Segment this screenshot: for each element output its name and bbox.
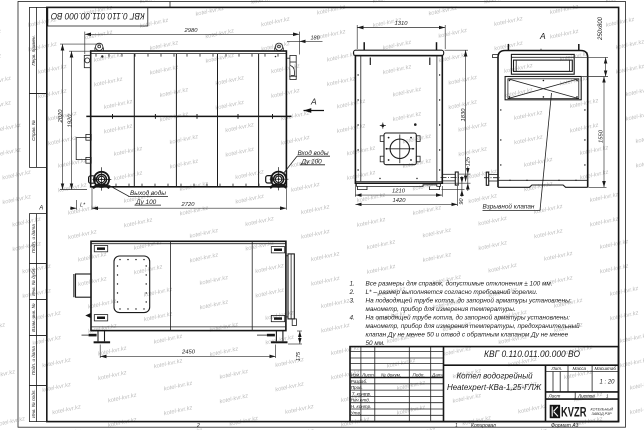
svg-text:kotel-kvr.kz: kotel-kvr.kz — [2, 194, 32, 206]
svg-text:kotel-kvr.kz: kotel-kvr.kz — [488, 263, 518, 275]
svg-text:2980: 2980 — [184, 28, 199, 34]
svg-text:kotel-kvr.kz: kotel-kvr.kz — [2, 170, 32, 182]
svg-text:kotel-kvr.kz: kotel-kvr.kz — [494, 16, 524, 28]
svg-text:Heatexpert-КВа-1,25-ГЛЖ: Heatexpert-КВа-1,25-ГЛЖ — [447, 383, 542, 392]
svg-text:kotel-kvr.kz: kotel-kvr.kz — [372, 0, 402, 5]
svg-text:kotel-kvr.kz: kotel-kvr.kz — [346, 145, 376, 157]
svg-text:kotel-kvr.kz: kotel-kvr.kz — [38, 88, 68, 100]
svg-text:kotel-kvr.kz: kotel-kvr.kz — [88, 299, 118, 311]
svg-text:2450: 2450 — [181, 350, 196, 356]
svg-text:1: 1 — [455, 423, 458, 429]
svg-text:Дата: Дата — [431, 372, 445, 377]
svg-text:kotel-kvr.kz: kotel-kvr.kz — [98, 370, 128, 382]
svg-text:kotel-kvr.kz: kotel-kvr.kz — [422, 228, 452, 240]
svg-text:kotel-kvr.kz: kotel-kvr.kz — [605, 17, 635, 29]
svg-text:kotel-kvr.kz: kotel-kvr.kz — [336, 123, 366, 135]
svg-text:1550: 1550 — [599, 129, 605, 143]
svg-text:kotel-kvr.kz: kotel-kvr.kz — [458, 146, 488, 158]
svg-text:kotel-kvr.kz: kotel-kvr.kz — [326, 76, 356, 88]
svg-text:kotel-kvr.kz: kotel-kvr.kz — [159, 112, 189, 124]
svg-text:kotel-kvr.kz: kotel-kvr.kz — [478, 240, 508, 252]
svg-text:kotel-kvr.kz: kotel-kvr.kz — [301, 204, 331, 216]
svg-text:Пров.: Пров. — [351, 385, 363, 390]
svg-text:kotel-kvr.kz: kotel-kvr.kz — [12, 217, 42, 229]
svg-text:kotel-kvr.kz: kotel-kvr.kz — [438, 28, 468, 40]
svg-text:kotel-kvr.kz: kotel-kvr.kz — [0, 76, 12, 88]
svg-text:kotel-kvr.kz: kotel-kvr.kz — [225, 147, 255, 159]
svg-text:kotel-kvr.kz: kotel-kvr.kz — [255, 263, 285, 275]
svg-text:kotel-kvr.kz: kotel-kvr.kz — [245, 241, 275, 253]
svg-text:Лит.: Лит. — [551, 366, 563, 371]
svg-text:kotel-kvr.kz: kotel-kvr.kz — [534, 204, 564, 216]
svg-text:kotel-kvr.kz: kotel-kvr.kz — [163, 405, 193, 417]
svg-text:манометр, прибор для измерения: манометр, прибор для измерения температу… — [366, 305, 516, 313]
svg-text:kotel-kvr.kz: kotel-kvr.kz — [422, 252, 452, 264]
svg-text:kotel-kvr.kz: kotel-kvr.kz — [245, 216, 275, 228]
svg-text:kotel-kvr.kz: kotel-kvr.kz — [382, 64, 412, 76]
svg-text:kotel-kvr.kz: kotel-kvr.kz — [12, 241, 42, 253]
svg-text:kotel-kvr.kz: kotel-kvr.kz — [139, 0, 169, 5]
svg-text:Вход воды: Вход воды — [298, 149, 329, 157]
svg-text:1210: 1210 — [392, 189, 406, 195]
svg-text:kotel-kvr.kz: kotel-kvr.kz — [346, 170, 376, 182]
svg-text:kotel-kvr.kz: kotel-kvr.kz — [569, 123, 599, 135]
svg-text:Н. контр.: Н. контр. — [351, 404, 372, 409]
svg-text:kotel-kvr.kz: kotel-kvr.kz — [113, 146, 143, 158]
svg-text:kotel-kvr.kz: kotel-kvr.kz — [356, 217, 386, 229]
svg-text:kotel-kvr.kz: kotel-kvr.kz — [629, 404, 644, 416]
svg-text:kotel-kvr.kz: kotel-kvr.kz — [448, 75, 478, 87]
svg-text:90: 90 — [459, 198, 465, 205]
svg-text:kotel-kvr.kz: kotel-kvr.kz — [261, 16, 291, 28]
svg-text:kotel-kvr.kz: kotel-kvr.kz — [153, 334, 183, 346]
svg-text:1920: 1920 — [67, 114, 73, 128]
svg-text:kotel-kvr.kz: kotel-kvr.kz — [199, 275, 229, 287]
svg-text:kotel-kvr.kz: kotel-kvr.kz — [235, 169, 265, 181]
svg-text:kotel-kvr.kz: kotel-kvr.kz — [356, 192, 386, 204]
svg-text:Масштаб: Масштаб — [595, 366, 617, 371]
svg-text:kotel-kvr.kz: kotel-kvr.kz — [619, 333, 644, 345]
svg-text:175: 175 — [296, 351, 302, 361]
svg-text:Листов: Листов — [577, 394, 595, 399]
svg-text:kotel-kvr.kz: kotel-kvr.kz — [107, 393, 137, 405]
svg-text:клапан Ду не менее 50 и отвод: клапан Ду не менее 50 и отвод с обратным… — [366, 331, 569, 339]
svg-text:kotel-kvr.kz: kotel-kvr.kz — [78, 252, 108, 264]
svg-text:Взам. инв. №: Взам. инв. № — [31, 303, 36, 331]
svg-text:kotel-kvr.kz: kotel-kvr.kz — [589, 192, 619, 204]
svg-text:kotel-kvr.kz: kotel-kvr.kz — [458, 122, 488, 134]
svg-text:3.: 3. — [350, 298, 355, 305]
svg-text:kotel-kvr.kz: kotel-kvr.kz — [615, 64, 644, 76]
svg-text:kotel-kvr.kz: kotel-kvr.kz — [518, 403, 548, 415]
svg-text:kotel-kvr.kz: kotel-kvr.kz — [321, 323, 351, 335]
svg-text:kotel-kvr.kz: kotel-kvr.kz — [599, 263, 629, 275]
svg-text:kotel-kvr.kz: kotel-kvr.kz — [93, 77, 123, 89]
svg-text:kotel-kvr.kz: kotel-kvr.kz — [285, 404, 315, 416]
svg-text:kotel-kvr.kz: kotel-kvr.kz — [169, 134, 199, 146]
svg-text:1.: 1. — [350, 281, 355, 288]
svg-text:kotel-kvr.kz: kotel-kvr.kz — [559, 76, 589, 88]
svg-text:kotel-kvr.kz: kotel-kvr.kz — [205, 53, 235, 65]
svg-text:kotel-kvr.kz: kotel-kvr.kz — [113, 170, 143, 182]
svg-text:L*: L* — [80, 203, 86, 209]
svg-text:kotel-kvr.kz: kotel-kvr.kz — [281, 135, 311, 147]
svg-text:kotel-kvr.kz: kotel-kvr.kz — [159, 87, 189, 99]
svg-text:kotel-kvr.kz: kotel-kvr.kz — [225, 122, 255, 134]
svg-text:kotel-kvr.kz: kotel-kvr.kz — [452, 393, 482, 405]
svg-text:Разраб.: Разраб. — [351, 379, 368, 384]
svg-text:kotel-kvr.kz: kotel-kvr.kz — [209, 322, 239, 334]
svg-text:kotel-kvr.kz: kotel-kvr.kz — [215, 75, 245, 87]
svg-text:kotel-kvr.kz: kotel-kvr.kz — [317, 29, 347, 41]
svg-text:kotel-kvr.kz: kotel-kvr.kz — [58, 182, 88, 194]
svg-text:Подп.: Подп. — [413, 372, 425, 377]
svg-text:50 мм.: 50 мм. — [366, 340, 385, 347]
svg-text:kotel-kvr.kz: kotel-kvr.kz — [619, 357, 644, 369]
svg-text:Формат А3: Формат А3 — [551, 423, 579, 429]
svg-text:kotel-kvr.kz: kotel-kvr.kz — [504, 63, 534, 75]
svg-text:kotel-kvr.kz: kotel-kvr.kz — [265, 310, 295, 322]
svg-text:На подводящей трубе котла, до: На подводящей трубе котла, до запорной а… — [366, 297, 572, 305]
svg-text:2020: 2020 — [58, 109, 64, 124]
svg-text:Лист: Лист — [548, 394, 561, 399]
svg-text:kotel-kvr.kz: kotel-kvr.kz — [412, 205, 442, 217]
svg-text:kotel-kvr.kz: kotel-kvr.kz — [514, 134, 544, 146]
svg-text:250х800: 250х800 — [598, 16, 604, 41]
svg-text:kotel-kvr.kz: kotel-kvr.kz — [275, 382, 305, 394]
svg-text:kotel-kvr.kz: kotel-kvr.kz — [133, 264, 163, 276]
svg-text:kotel-kvr.kz: kotel-kvr.kz — [392, 87, 422, 99]
svg-text:kotel-kvr.kz: kotel-kvr.kz — [615, 39, 644, 51]
svg-text:манометр, прибор для измерения: манометр, прибор для измерения температу… — [366, 322, 581, 330]
svg-text:КВГ 0.110.011.00.000 ВО: КВГ 0.110.011.00.000 ВО — [50, 10, 144, 21]
svg-text:kotel-kvr.kz: kotel-kvr.kz — [189, 228, 219, 240]
svg-text:kotel-kvr.kz: kotel-kvr.kz — [321, 298, 351, 310]
svg-text:kotel-kvr.kz: kotel-kvr.kz — [84, 30, 114, 42]
svg-text:kotel-kvr.kz: kotel-kvr.kz — [549, 4, 579, 16]
svg-text:kotel-kvr.kz: kotel-kvr.kz — [189, 253, 219, 265]
svg-text:Копировал: Копировал — [471, 423, 496, 429]
svg-text:kotel-kvr.kz: kotel-kvr.kz — [0, 322, 6, 334]
svg-text:kotel-kvr.kz: kotel-kvr.kz — [341, 417, 371, 429]
svg-text:kotel-kvr.kz: kotel-kvr.kz — [589, 216, 619, 228]
svg-text:1830: 1830 — [461, 108, 467, 122]
svg-text:kotel-kvr.kz: kotel-kvr.kz — [544, 251, 574, 263]
svg-text:kotel-kvr.kz: kotel-kvr.kz — [605, 0, 635, 4]
svg-text:4.: 4. — [350, 315, 355, 322]
svg-text:kotel-kvr.kz: kotel-kvr.kz — [0, 147, 22, 159]
svg-text:2: 2 — [196, 423, 200, 429]
svg-text:1420: 1420 — [393, 198, 407, 204]
svg-text:А: А — [38, 206, 43, 212]
svg-text:КОТЕЛЬНЫЙ: КОТЕЛЬНЫЙ — [591, 407, 614, 411]
svg-text:kotel-kvr.kz: kotel-kvr.kz — [609, 286, 639, 298]
svg-text:Все размеры для справок, допус: Все размеры для справок, допустимые откл… — [366, 280, 553, 288]
svg-text:А: А — [539, 31, 546, 41]
svg-text:Перв. примен.: Перв. примен. — [31, 35, 36, 66]
svg-text:kotel-kvr.kz: kotel-kvr.kz — [524, 157, 554, 169]
svg-text:Инв. № подл.: Инв. № подл. — [31, 389, 36, 418]
svg-text:kotel-kvr.kz: kotel-kvr.kz — [0, 369, 16, 381]
svg-text:2720: 2720 — [181, 202, 196, 208]
svg-text:А: А — [310, 97, 317, 107]
svg-text:kotel-kvr.kz: kotel-kvr.kz — [143, 287, 173, 299]
svg-text:kotel-kvr.kz: kotel-kvr.kz — [0, 29, 2, 41]
svg-text:Справ. №: Справ. № — [31, 120, 36, 141]
svg-text:Масса: Масса — [573, 366, 587, 371]
svg-text:kotel-kvr.kz: kotel-kvr.kz — [38, 64, 68, 76]
svg-text:kotel-kvr.kz: kotel-kvr.kz — [609, 310, 639, 322]
svg-text:125: 125 — [465, 156, 471, 166]
svg-text:Ду 100: Ду 100 — [301, 158, 323, 165]
svg-text:kotel-kvr.kz: kotel-kvr.kz — [0, 123, 22, 135]
svg-text:kotel-kvr.kz: kotel-kvr.kz — [68, 229, 98, 241]
svg-text:Инв. № дубл.: Инв. № дубл. — [31, 267, 36, 295]
svg-text:kotel-kvr.kz: kotel-kvr.kz — [514, 110, 544, 122]
svg-text:kotel-kvr.kz: kotel-kvr.kz — [392, 111, 422, 123]
svg-text:kotel-kvr.kz: kotel-kvr.kz — [0, 416, 26, 428]
svg-text:Т. контр.: Т. контр. — [352, 391, 372, 396]
svg-text:kotel-kvr.kz: kotel-kvr.kz — [366, 264, 396, 276]
svg-text:KVZR: KVZR — [561, 405, 587, 420]
svg-text:kotel-kvr.kz: kotel-kvr.kz — [635, 133, 644, 145]
svg-text:kotel-kvr.kz: kotel-kvr.kz — [169, 159, 199, 171]
svg-text:kotel-kvr.kz: kotel-kvr.kz — [402, 158, 432, 170]
svg-text:kotel-kvr.kz: kotel-kvr.kz — [123, 217, 153, 229]
svg-text:Утв.: Утв. — [351, 410, 361, 415]
svg-text:kotel-kvr.kz: kotel-kvr.kz — [635, 158, 644, 170]
svg-text:kotel-kvr.kz: kotel-kvr.kz — [143, 311, 173, 323]
svg-text:1: 1 — [606, 394, 609, 399]
svg-text:kotel-kvr.kz: kotel-kvr.kz — [366, 239, 396, 251]
svg-text:kotel-kvr.kz: kotel-kvr.kz — [336, 99, 366, 111]
svg-text:2.: 2. — [349, 289, 355, 296]
svg-text:kotel-kvr.kz: kotel-kvr.kz — [316, 5, 346, 17]
svg-text:kotel-kvr.kz: kotel-kvr.kz — [478, 216, 508, 228]
svg-text:Подп. и дата: Подп. и дата — [31, 224, 36, 253]
svg-text:КВГ 0.110.011.00.000 ВО: КВГ 0.110.011.00.000 ВО — [484, 348, 581, 359]
svg-text:180: 180 — [311, 35, 321, 41]
svg-text:kotel-kvr.kz: kotel-kvr.kz — [199, 299, 229, 311]
svg-text:kotel-kvr.kz: kotel-kvr.kz — [291, 182, 321, 194]
svg-text:kotel-kvr.kz: kotel-kvr.kz — [311, 251, 341, 263]
svg-text:Котел водогрейный: Котел водогрейный — [456, 371, 533, 380]
svg-text:kotel-kvr.kz: kotel-kvr.kz — [103, 123, 133, 135]
svg-text:kotel-kvr.kz: kotel-kvr.kz — [311, 276, 341, 288]
svg-text:kotel-kvr.kz: kotel-kvr.kz — [98, 346, 128, 358]
svg-text:kotel-kvr.kz: kotel-kvr.kz — [251, 0, 281, 6]
svg-text:kotel-kvr.kz: kotel-kvr.kz — [163, 381, 193, 393]
svg-text:Изм.: Изм. — [351, 372, 361, 377]
svg-text:kotel-kvr.kz: kotel-kvr.kz — [326, 52, 356, 64]
svg-text:На отводящей трубе котла, до з: На отводящей трубе котла, до запорной ар… — [366, 314, 571, 322]
svg-text:1310: 1310 — [395, 21, 409, 27]
svg-text:Выход воды: Выход воды — [130, 189, 166, 197]
svg-text:L* – размер выполняется соглас: L* – размер выполняется согласно требова… — [366, 288, 538, 296]
svg-text:kotel-kvr.kz: kotel-kvr.kz — [215, 100, 245, 112]
svg-text:1 : 20: 1 : 20 — [600, 380, 616, 386]
svg-text:kotel-kvr.kz: kotel-kvr.kz — [255, 288, 285, 300]
svg-text:kotel-kvr.kz: kotel-kvr.kz — [153, 358, 183, 370]
svg-text:Взрывной клапан: Взрывной клапан — [483, 203, 535, 211]
svg-text:№ докум.: № докум. — [381, 372, 401, 377]
svg-text:kotel-kvr.kz: kotel-kvr.kz — [549, 29, 579, 41]
svg-text:kotel-kvr.kz: kotel-kvr.kz — [0, 100, 12, 112]
svg-text:kotel-kvr.kz: kotel-kvr.kz — [219, 393, 249, 405]
svg-text:kotel-kvr.kz: kotel-kvr.kz — [484, 0, 514, 6]
svg-text:kotel-kvr.kz: kotel-kvr.kz — [219, 369, 249, 381]
svg-text:kotel-kvr.kz: kotel-kvr.kz — [579, 170, 609, 182]
svg-text:kotel-kvr.kz: kotel-kvr.kz — [78, 276, 108, 288]
svg-text:kotel-kvr.kz: kotel-kvr.kz — [0, 53, 2, 65]
svg-text:kotel-kvr.kz: kotel-kvr.kz — [579, 145, 609, 157]
svg-text:kotel-kvr.kz: kotel-kvr.kz — [534, 228, 564, 240]
svg-text:kotel-kvr.kz: kotel-kvr.kz — [88, 323, 118, 335]
svg-text:kotel-kvr.kz: kotel-kvr.kz — [52, 404, 82, 416]
svg-text:Лист: Лист — [361, 372, 374, 377]
svg-text:kotel-kvr.kz: kotel-kvr.kz — [599, 239, 629, 251]
svg-text:kotel-kvr.kz: kotel-kvr.kz — [103, 99, 133, 111]
svg-text:kotel-kvr.kz: kotel-kvr.kz — [625, 111, 644, 123]
svg-text:kotel-kvr.kz: kotel-kvr.kz — [629, 380, 644, 392]
svg-text:Подп. и дата: Подп. и дата — [31, 346, 36, 375]
svg-text:kotel-kvr.kz: kotel-kvr.kz — [625, 86, 644, 98]
svg-text:kotel-kvr.kz: kotel-kvr.kz — [301, 229, 331, 241]
svg-text:kotel-kvr.kz: kotel-kvr.kz — [149, 65, 179, 77]
svg-text:Нач.отд.: Нач.отд. — [351, 398, 370, 403]
svg-text:ЗАВОД РЗР: ЗАВОД РЗР — [592, 412, 613, 416]
svg-text:kotel-kvr.kz: kotel-kvr.kz — [235, 194, 265, 206]
svg-text:kotel-kvr.kz: kotel-kvr.kz — [442, 346, 472, 358]
